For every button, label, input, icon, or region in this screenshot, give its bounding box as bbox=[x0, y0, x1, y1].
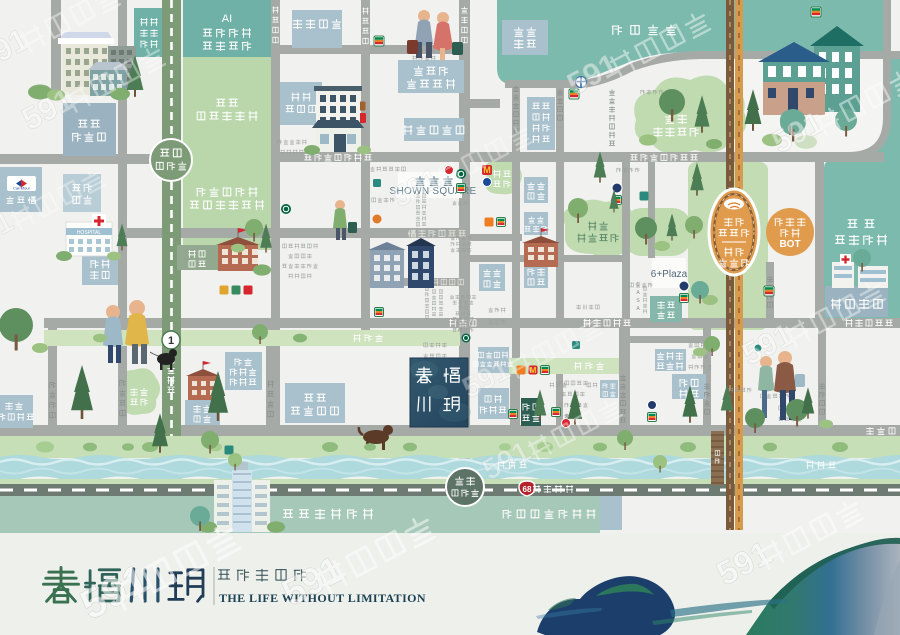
svg-text:6+Plaza: 6+Plaza bbox=[651, 269, 688, 280]
svg-text:Carrefour: Carrefour bbox=[13, 186, 31, 191]
svg-text:AI: AI bbox=[222, 13, 232, 25]
svg-text:1: 1 bbox=[168, 335, 174, 347]
svg-text:BOT: BOT bbox=[779, 239, 800, 250]
svg-text:68: 68 bbox=[523, 485, 532, 494]
svg-text:HOSPITAL: HOSPITAL bbox=[77, 230, 102, 236]
